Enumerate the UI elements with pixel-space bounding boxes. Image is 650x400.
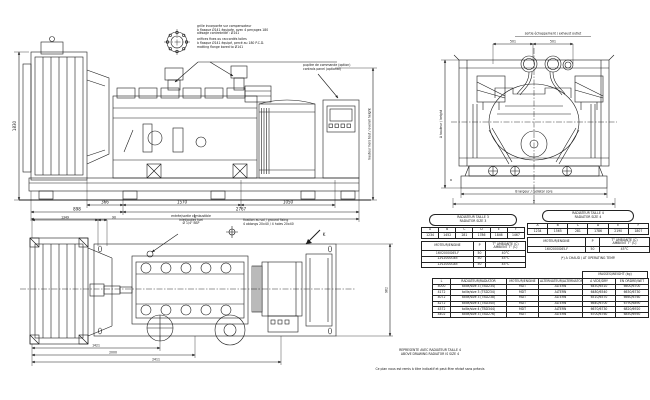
centerlines-end: [451, 48, 617, 204]
dim-label: 1830: [12, 120, 17, 131]
table-title: RADIATEUR TAILLE 4 RADIATOR SIZE 4: [542, 210, 634, 222]
drawing-sheet: 366 1570 1050 898 2767 L 1830 hauteur ho…: [0, 0, 650, 400]
weight-span-header: MASSES/WEIGHT (kg): [582, 271, 648, 278]
radiator-size-note: REPRESENTE AVEC RADIATEUR TAILLE 4 ABOVE…: [320, 349, 540, 356]
table-row: 12341452281 178618461467: [422, 233, 525, 239]
table-row: MOTEUR/ENGINE P T° AMBIANTE (C)AMBIENT T…: [528, 238, 650, 247]
control-console: [323, 100, 359, 178]
dim-label: a: [450, 178, 452, 182]
fan-duct-plan: [88, 248, 112, 336]
radiator-side: [23, 37, 87, 181]
disclaimer-note: Ce plan nous est remis à titre indicatif…: [275, 368, 585, 372]
dims-grid: ABC DEF 12341565281 178621901807: [527, 223, 649, 235]
weight-table: L RADIATEUR/RADIATOR MOTEUR/ENGINE ALTER…: [432, 278, 649, 318]
table-row: 16V2000G65-F5045°C: [528, 247, 650, 253]
engine-grid: MOTEUR/ENGINE P T° AMBIANTE (C)AMBIENT T…: [527, 237, 650, 253]
end-view-dimensions-top: sortie échappement / exhaust outlet 501 …: [493, 32, 591, 65]
base-frame-side: [19, 178, 371, 200]
dim-label: 501: [550, 40, 556, 44]
silencers-end: [477, 76, 603, 110]
plan-dimensions-top: 1349 90: [32, 215, 116, 246]
note-line: 4 oblongs 20x40 / 4 holes 20x40: [243, 223, 359, 227]
crankshaft-plan: [90, 284, 132, 296]
table-row: MOTEUR/ENGINE P T° AMBIANTE (C)AMBIENT T…: [422, 242, 526, 251]
dims-grid: ABC DEF 12341452281 178618461467: [421, 227, 525, 239]
fuel-leader: [152, 234, 178, 252]
alternator-side: [259, 100, 315, 178]
note-line: Ø 1/4" BSP: [148, 222, 234, 226]
fuel-connection-note: entrée/sortie combustible inlet/outlet f…: [148, 215, 234, 226]
dim-label: 501: [510, 40, 516, 44]
radiator-size3-table: RADIATEUR TAILLE 3 RADIATOR SIZE 3 ABC D…: [421, 214, 525, 268]
fixing-marker-icon: [226, 226, 238, 238]
end-view-dimensions: A hauteur / height a B largeur / radiato…: [439, 60, 615, 208]
dim-label: A hauteur / height: [439, 109, 443, 138]
section-k-label: K: [323, 232, 326, 237]
dim-label: 90: [112, 215, 116, 219]
fan-duct: [87, 70, 109, 164]
control-panel-note: pupitre de commande (option) controls pa…: [303, 64, 415, 71]
radiator-size4-table: RADIATEUR TAILLE 4 RADIATOR SIZE 4 ABC D…: [527, 210, 649, 261]
engine-grid: MOTEUR/ENGINE P T° AMBIANTE (C)AMBIENT T…: [421, 241, 526, 268]
table-row: 12V2000G855045°C: [422, 262, 526, 268]
engine-plan: [132, 251, 248, 345]
right-duct-plan: [306, 254, 332, 326]
dim-label: 1349: [61, 215, 69, 219]
end-view: sortie échappement / exhaust outlet 501 …: [425, 18, 650, 215]
exhaust-outlet-label: sortie échappement / exhaust outlet: [525, 32, 582, 36]
dim-label: 1050: [283, 200, 294, 205]
alternator-plan: [252, 262, 302, 332]
base-frame-plan: [94, 244, 336, 336]
dim-label: hauteur hors tout / overall height: [368, 107, 372, 159]
table-row: 12341565281 178621901807: [528, 229, 649, 235]
note-line: matting flange bored to Ø141: [197, 46, 339, 50]
dim-label: D: [533, 200, 536, 204]
dim-label: 2411: [152, 358, 160, 362]
dim-label: 962: [385, 287, 389, 293]
section-k-marker: K: [306, 230, 326, 244]
dim-label: 2000: [109, 351, 117, 355]
flange-detail-icon: [164, 29, 190, 55]
note-line: ABOVE DRAWING RADIATOR IS SIZE 4: [320, 353, 540, 357]
exhaust-connection-note: grille incorporée sur compensateur à fla…: [197, 25, 339, 49]
radiator-plan: [30, 238, 88, 344]
table-footnote: (*) A CHAUD / AT OPERATING TEMP.: [527, 256, 649, 261]
dim-label: 1570: [177, 200, 188, 205]
table-row: 4402taille/size 3 (TBD276)MDT ALTERN6700…: [433, 312, 649, 318]
table-title: RADIATEUR TAILLE 3 RADIATOR SIZE 3: [429, 214, 517, 226]
dim-label: 366: [101, 200, 109, 205]
engine-side: [113, 66, 271, 178]
ground-fixing-note: fixation au sol / ground fixing 4 oblong…: [243, 219, 359, 226]
radiator-core-label: B largeur / radiator core: [515, 190, 552, 194]
dim-label: 1421: [92, 344, 100, 348]
note-line: controls panel (optional): [303, 68, 415, 72]
